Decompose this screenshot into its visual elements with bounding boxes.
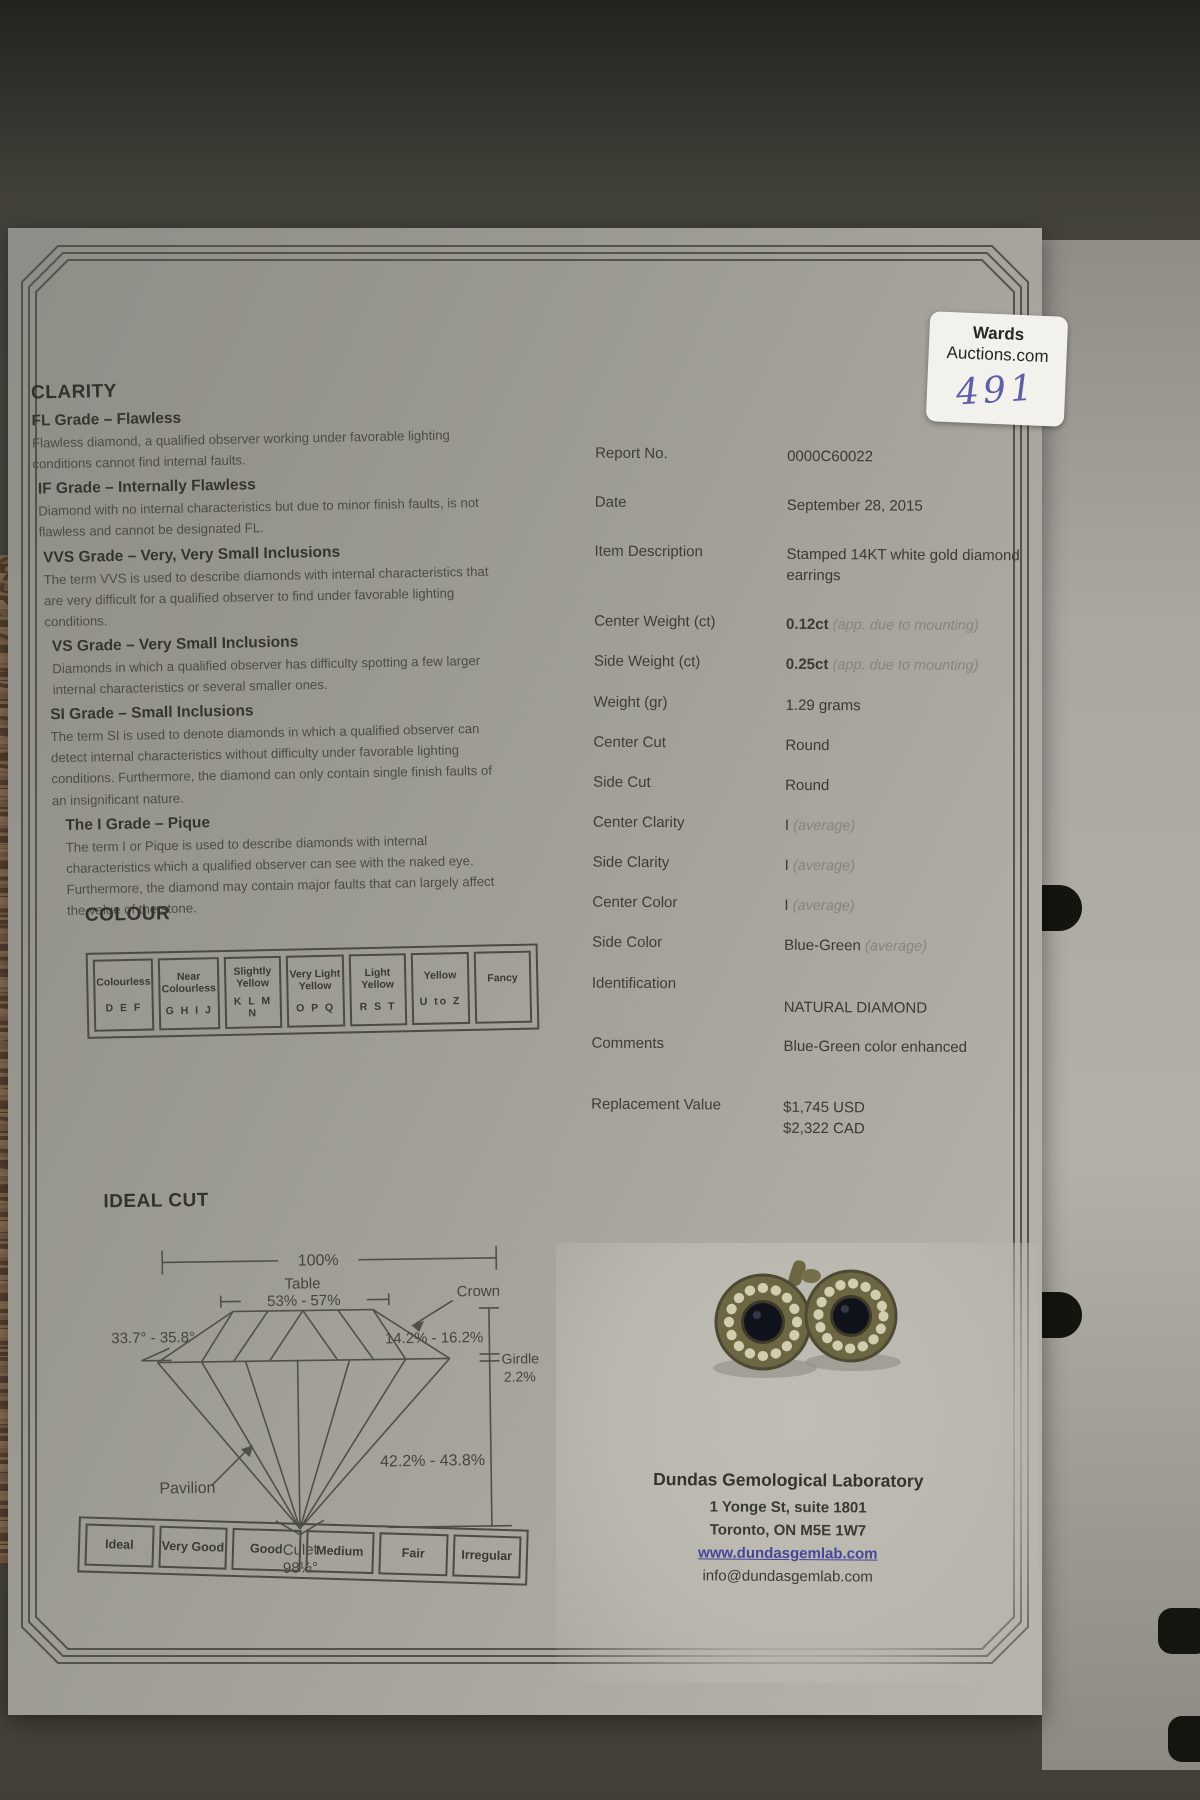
- row-label: Center Weight (ct): [594, 613, 786, 635]
- row-label: Side Cut: [593, 773, 785, 795]
- cut-grade-cell: Fair: [378, 1532, 448, 1576]
- row-note: (app. due to mounting): [833, 617, 979, 634]
- row-value: Round: [785, 734, 1025, 756]
- row-value: Stamped 14KT white gold diamond earrings: [786, 544, 1026, 587]
- grade-description: Diamonds in which a qualified observer h…: [52, 649, 507, 700]
- row-note: (average): [793, 898, 855, 914]
- row-value: 0.25ct: [786, 656, 829, 673]
- colour-section: COLOUR Colourless D E F Near Colourless …: [85, 895, 558, 1039]
- photo-background: Wards Auctions.com 491 CLARITY FL Grade …: [0, 0, 1200, 1800]
- dim-total: 100%: [298, 1252, 339, 1270]
- row-note: (average): [793, 858, 855, 874]
- row-note: (average): [793, 817, 855, 833]
- auction-sticker: Wards Auctions.com 491: [926, 311, 1068, 427]
- sticker-brand-line1: Wards: [972, 323, 1024, 345]
- row-label: Center Color: [592, 894, 784, 916]
- colour-name: Near Colourless: [161, 970, 216, 995]
- report-row: Center Clarity I (average): [593, 813, 1033, 837]
- row-value: Blue-Green color enhanced: [783, 1036, 1023, 1058]
- clarity-grade: FL Grade – Flawless Flawless diamond, a …: [31, 404, 502, 475]
- backing-sheet-strip: [1042, 240, 1200, 1770]
- dim-table-pct: 53% - 57%: [267, 1292, 341, 1310]
- label-pavilion: Pavilion: [159, 1480, 215, 1498]
- colour-cell: Colourless D E F: [93, 959, 155, 1032]
- report-row: Center Cut Round: [593, 733, 1033, 757]
- row-value-usd: $1,745 USD: [783, 1097, 1023, 1119]
- row-label: Comments: [591, 1034, 783, 1056]
- report-row: Item Description Stamped 14KT white gold…: [594, 543, 1034, 588]
- dim-pavilion-pct: 42.2% - 43.8%: [380, 1452, 485, 1470]
- report-row: Weight (gr) 1.29 grams: [594, 693, 1034, 717]
- row-value-cad: $2,322 CAD: [783, 1118, 1023, 1140]
- label-crown: Crown: [457, 1283, 501, 1301]
- identification-value: NATURAL DIAMOND: [784, 999, 1032, 1018]
- colour-letters: U to Z: [420, 995, 462, 1008]
- row-value: I: [785, 857, 789, 874]
- punch-hole: [1158, 1608, 1200, 1654]
- lab-address1: 1 Yonge St, suite 1801: [568, 1495, 1008, 1521]
- colour-letters: R S T: [360, 1000, 397, 1013]
- row-label: Center Clarity: [593, 813, 785, 835]
- colour-cell: Fancy: [473, 951, 532, 1024]
- clarity-section: CLARITY FL Grade – Flawless Flawless dia…: [31, 374, 511, 924]
- grade-description: The term SI is used to denote diamonds i…: [50, 718, 509, 811]
- cut-grade-cell: Medium: [305, 1530, 375, 1574]
- row-value: 1.29 grams: [786, 694, 1026, 716]
- row-value: Round: [785, 774, 1025, 796]
- sticker-brand-line2: Auctions.com: [946, 342, 1049, 368]
- report-row: Side Cut Round: [593, 773, 1033, 797]
- lab-website-link: www.dundasgemlab.com: [568, 1540, 1008, 1567]
- lab-address2: Toronto, ON M5E 1W7: [568, 1518, 1008, 1544]
- row-label: Item Description: [594, 543, 786, 586]
- row-value: I: [784, 897, 788, 914]
- row-value: 0.12ct: [786, 616, 829, 633]
- cut-grade-cell: Good: [231, 1528, 301, 1572]
- grade-description: The term VVS is used to describe diamond…: [43, 560, 505, 632]
- certificate-paper: Wards Auctions.com 491 CLARITY FL Grade …: [8, 228, 1042, 1715]
- row-note: (app. due to mounting): [833, 657, 979, 674]
- report-row: Side Weight (ct) 0.25ct (app. due to mou…: [594, 653, 1034, 677]
- row-label: Identification: [592, 974, 784, 992]
- row-value: September 28, 2015: [787, 495, 1027, 517]
- clarity-grade: SI Grade – Small Inclusions The term SI …: [50, 698, 509, 811]
- row-label: Replacement Value: [591, 1095, 783, 1138]
- colour-name: Light Yellow: [352, 967, 404, 992]
- report-row: Date September 28, 2015: [595, 494, 1035, 518]
- row-note: (average): [865, 939, 927, 955]
- lot-number-handwritten: 491: [955, 367, 1038, 413]
- row-value: I: [785, 816, 789, 833]
- row-value: Blue-Green: [784, 937, 861, 954]
- colour-cell: Near Colourless G H I J: [158, 957, 220, 1030]
- dim-crown-pct: 14.2% - 16.2%: [385, 1329, 484, 1347]
- report-row: Report No. 0000C60022: [595, 445, 1035, 469]
- report-row: Center Color I (average): [592, 894, 1032, 918]
- row-label: Side Clarity: [593, 854, 785, 876]
- report-details: Report No. 0000C60022 Date September 28,…: [591, 445, 1035, 1159]
- row-label: Report No.: [595, 445, 787, 467]
- dim-girdle-pct: 2.2%: [504, 1368, 536, 1384]
- row-label: Side Color: [592, 934, 784, 956]
- colour-letters: O P Q: [296, 1001, 335, 1014]
- colour-letters: K L M N: [227, 995, 279, 1020]
- cut-grade-cell: Very Good: [158, 1526, 228, 1570]
- row-label: Center Cut: [593, 733, 785, 755]
- colour-name: Colourless: [96, 976, 151, 989]
- label-girdle: Girdle: [502, 1350, 540, 1367]
- earrings-photo: [673, 1250, 923, 1400]
- colour-cell: Very Light Yellow O P Q: [286, 955, 345, 1028]
- colour-cell: Slightly Yellow K L M N: [223, 956, 282, 1029]
- colour-cell: Yellow U to Z: [411, 952, 470, 1025]
- dim-table-label: Table: [285, 1275, 321, 1292]
- colour-scale-table: Colourless D E F Near Colourless G H I J…: [86, 943, 540, 1038]
- punch-hole: [1168, 1716, 1200, 1762]
- report-row: Center Weight (ct) 0.12ct (app. due to m…: [594, 613, 1034, 637]
- lab-block: Dundas Gemological Laboratory 1 Yonge St…: [568, 1468, 1009, 1590]
- row-label: Weight (gr): [594, 693, 786, 715]
- clarity-grade: VS Grade – Very Small Inclusions Diamond…: [52, 629, 507, 700]
- colour-name: Very Light Yellow: [289, 968, 341, 993]
- report-row: Replacement Value $1,745 USD $2,322 CAD: [591, 1095, 1031, 1140]
- dim-crown-angle: 33.7° - 35.8°: [111, 1329, 195, 1347]
- report-row: Comments Blue-Green color enhanced: [591, 1034, 1031, 1058]
- colour-name: Slightly Yellow: [226, 965, 278, 990]
- lab-email: info@dundasgemlab.com: [568, 1564, 1008, 1590]
- clarity-grade: IF Grade – Internally Flawless Diamond w…: [38, 472, 504, 543]
- row-label: Date: [595, 494, 787, 516]
- colour-letters: G H I J: [166, 1004, 214, 1017]
- report-row: Side Clarity I (average): [593, 854, 1033, 878]
- cut-grade-cell: Ideal: [84, 1524, 154, 1568]
- row-value: 0000C60022: [787, 446, 1027, 468]
- report-row: Side Color Blue-Green (average): [592, 934, 1032, 958]
- colour-name: Yellow: [424, 969, 457, 982]
- colour-cell: Light Yellow R S T: [348, 953, 407, 1026]
- colour-name: Fancy: [487, 972, 518, 985]
- grade-description: Diamond with no internal characteristics…: [38, 492, 504, 543]
- clarity-grade: VVS Grade – Very, Very Small Inclusions …: [43, 540, 506, 632]
- grade-description: Flawless diamond, a qualified observer w…: [32, 424, 503, 475]
- cut-grade-cell: Irregular: [452, 1534, 522, 1578]
- colour-letters: D E F: [105, 1001, 142, 1014]
- lab-name: Dundas Gemological Laboratory: [568, 1468, 1008, 1492]
- row-label: Side Weight (ct): [594, 653, 786, 675]
- report-row: Identification: [592, 974, 1032, 994]
